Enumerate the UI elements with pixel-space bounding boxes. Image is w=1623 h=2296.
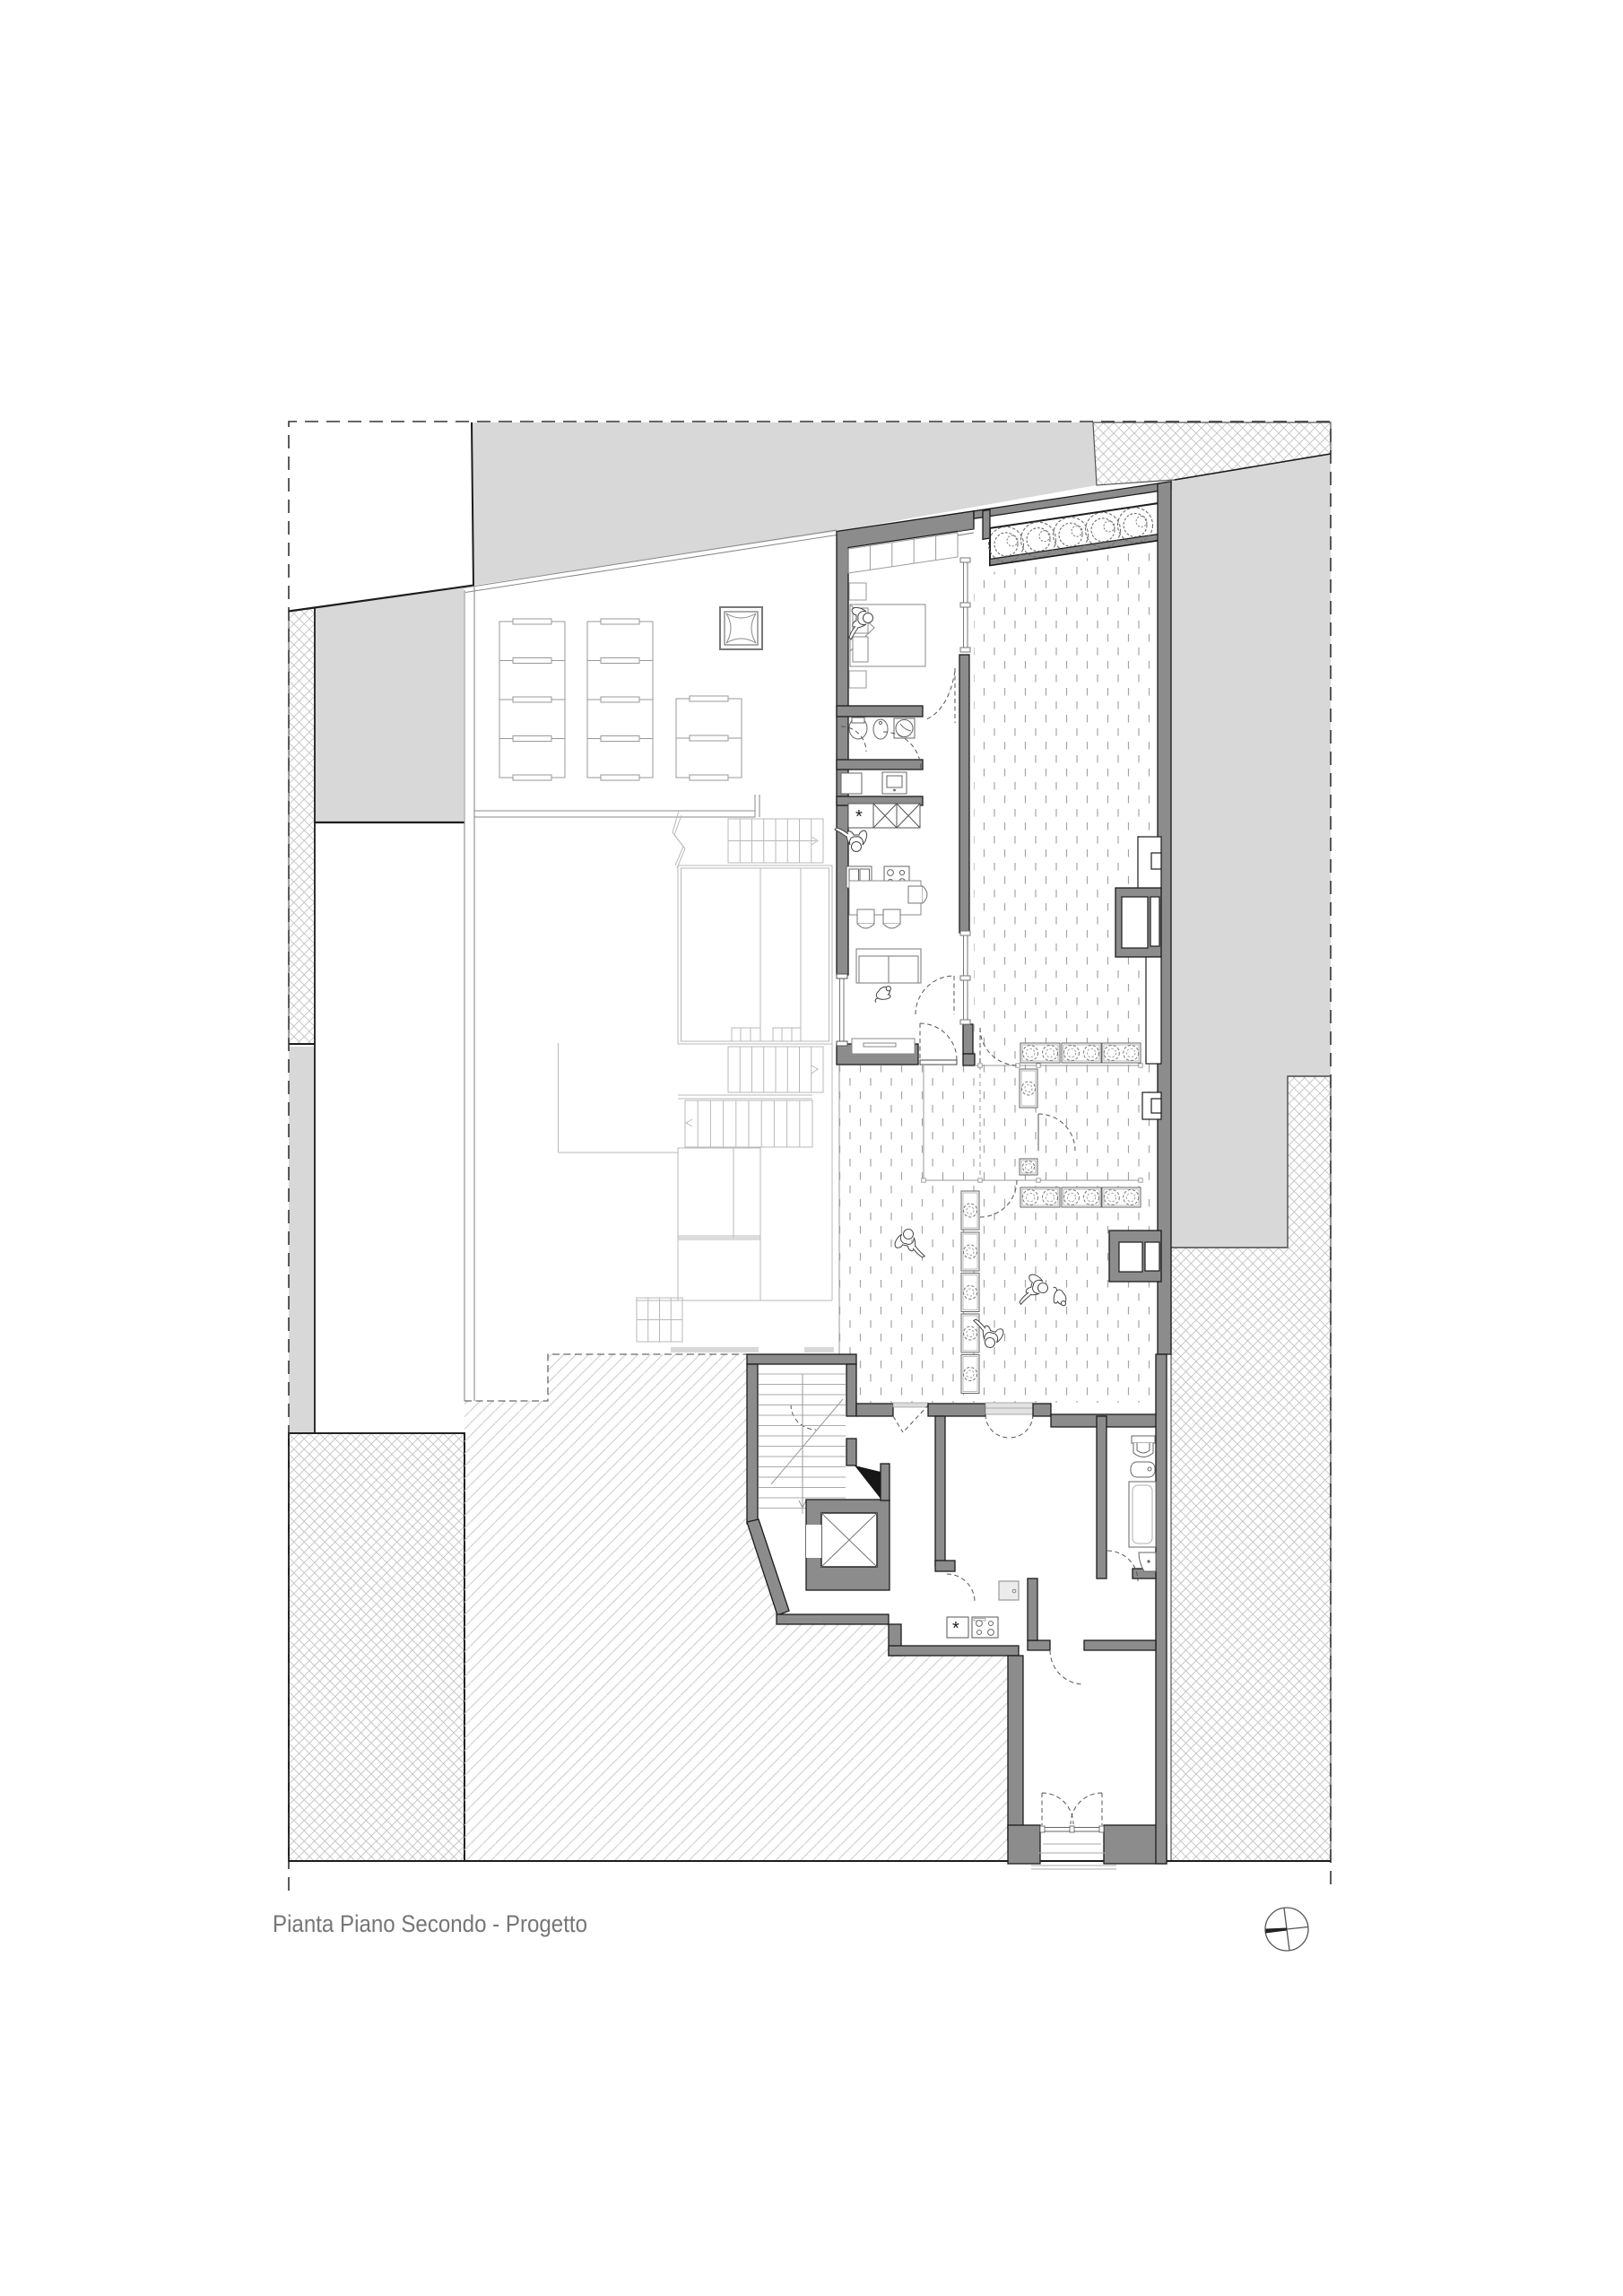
svg-text:*: * — [855, 807, 863, 827]
svg-text:Pianta Piano Secondo - Progett: Pianta Piano Secondo - Progetto — [273, 1910, 587, 1937]
svg-text:*: * — [952, 1619, 959, 1639]
